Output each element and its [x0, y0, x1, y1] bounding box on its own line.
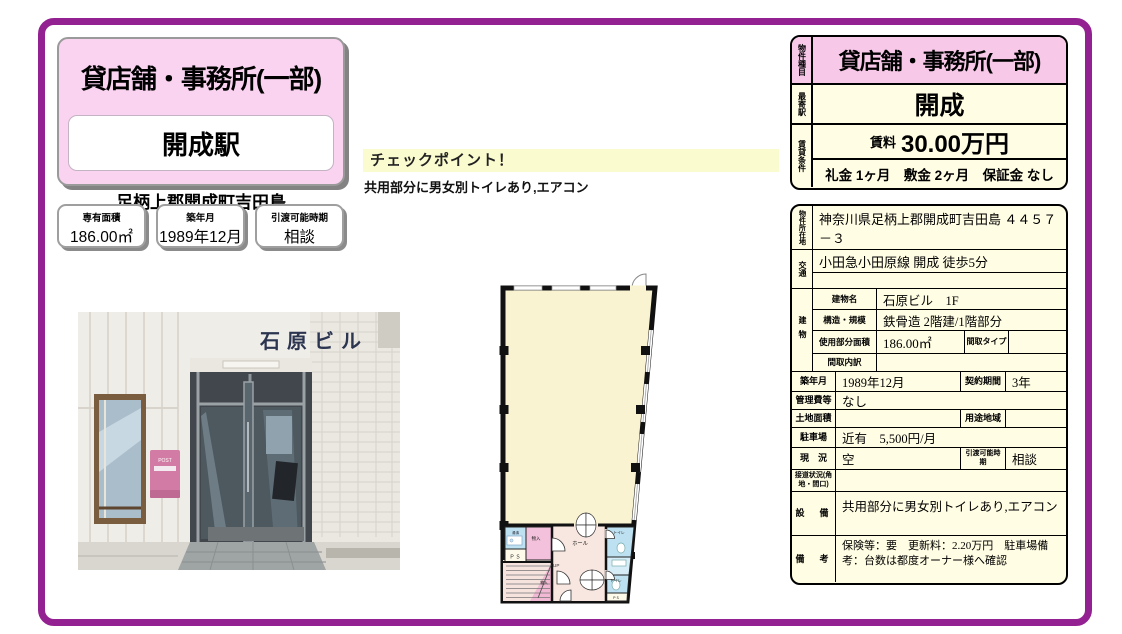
traffic-value-2: [813, 273, 1066, 288]
built-value: 1989年12月: [836, 372, 960, 391]
label-up: UP: [553, 563, 559, 568]
room-label-toilet-lower: トイレ: [610, 578, 622, 583]
structure-value: 鉄骨造 2階建/1階部分: [877, 310, 1066, 330]
room-label-storage-upper: 物入: [532, 535, 541, 542]
summary-type-label: 物件種目: [798, 44, 806, 76]
double-door: [576, 513, 596, 537]
stat-box-handover: 引渡可能時期 相談: [255, 204, 344, 248]
stat-value: 186.00㎡: [59, 225, 144, 247]
rent-value: 30.00万円: [901, 124, 1009, 159]
parking-value: 近有 5,500円/月: [836, 428, 1066, 447]
stat-label: 築年月: [158, 210, 243, 224]
zoning-label: 用途地域: [960, 410, 1006, 427]
land-label: 土地面積: [792, 410, 836, 427]
room-label-ps-right: ＰＳ: [613, 596, 620, 600]
status-value: 空: [836, 448, 960, 469]
layout-type-value: [1009, 331, 1066, 353]
layout-detail-value: [877, 354, 1066, 371]
double-door: [580, 570, 604, 590]
stat-value: 1989年12月: [158, 225, 243, 247]
stat-value: 相談: [257, 225, 342, 247]
station-box: 開成駅: [68, 115, 334, 171]
terms-value: 礼金 1ヶ月 敷金 2ヶ月 保証金 なし: [813, 160, 1066, 187]
road-label: 接道状況(角地・間口): [792, 470, 836, 491]
room-label-kitchenette: 湯沸: [512, 530, 520, 535]
traffic-label: 交通: [798, 261, 806, 277]
handover-label: 引渡可能時期: [960, 448, 1006, 469]
property-type-title: 貸店舗・事務所(一部): [59, 39, 343, 115]
room-label-toilet-upper: トイレ: [613, 530, 625, 535]
contract-label: 契約期間: [960, 372, 1006, 391]
summary-table: 物件種目 貸店舗・事務所(一部) 最寄駅 開成 賃貸条件 賃料 30.00万円 …: [790, 35, 1068, 190]
stat-label: 引渡可能時期: [257, 210, 342, 224]
notes-label: 備 考: [792, 536, 836, 582]
room-label-hall: ホール: [572, 540, 588, 547]
land-value: [836, 410, 960, 427]
building-name-value: 石原ビル 1F: [877, 289, 1066, 309]
headline-box: 貸店舗・事務所(一部) 開成駅: [57, 37, 345, 186]
mailbox: POST: [150, 450, 180, 498]
summary-station-label: 最寄駅: [798, 92, 806, 116]
contract-value: 3年: [1006, 372, 1066, 391]
stat-box-area: 専有面積 186.00㎡: [57, 204, 146, 248]
building-label-cell: 建物: [792, 289, 813, 371]
summary-terms-label: 賃貸条件: [798, 140, 806, 172]
use-area-value: 186.00㎡: [877, 331, 965, 353]
rent-label: 賃料: [870, 132, 896, 151]
checkpoint-body: 共用部分に男女別トイレあり,エアコン: [364, 177, 780, 196]
location-label: 物件所在地: [799, 210, 806, 245]
parking-label: 駐車場: [792, 428, 836, 447]
window: [94, 394, 146, 524]
summary-type-label-cell: 物件種目: [792, 37, 813, 83]
room-label-storage-stairs: 物入: [540, 580, 548, 585]
handover-value: 相談: [1006, 448, 1066, 469]
summary-station-label-cell: 最寄駅: [792, 85, 813, 123]
stat-boxes: 専有面積 186.00㎡ 築年月 1989年12月 引渡可能時期 相談: [57, 204, 344, 248]
layout-detail-label: 間取内訳: [813, 354, 877, 371]
flyer-page: 貸店舗・事務所(一部) 開成駅 足柄上郡開成町吉田島 専有面積 186.00㎡ …: [0, 0, 1122, 634]
building-sign: 石原ビル: [259, 330, 368, 353]
traffic-label-cell: 交通: [792, 250, 813, 288]
road-value: [836, 470, 1066, 491]
layout-type-label: 間取タイプ: [965, 331, 1009, 353]
summary-type-value: 貸店舗・事務所(一部): [813, 37, 1066, 83]
stat-box-built: 築年月 1989年12月: [156, 204, 245, 248]
summary-station-value: 開成: [813, 85, 1066, 123]
location-value: 神奈川県足柄上郡開成町吉田島 ４４５７－３: [813, 206, 1066, 249]
location-label-cell: 物件所在地: [792, 206, 813, 249]
status-label: 現 況: [792, 448, 836, 469]
summary-terms-label-cell: 賃貸条件: [792, 125, 813, 187]
traffic-value: 小田急小田原線 開成 徒歩5分: [813, 250, 1066, 273]
stat-label: 専有面積: [59, 210, 144, 224]
building-name-label: 建物名: [813, 289, 877, 309]
ground: [78, 542, 400, 570]
equipment-label: 設 備: [792, 492, 836, 535]
floor-plan: 湯沸 ＰＳ 物入 ホール トイレ トイレ ＰＳ UP 物入: [494, 272, 666, 614]
building-label: 建物: [798, 316, 806, 344]
checkpoint-title: チェックポイント！: [363, 149, 779, 172]
management-label: 管理費等: [792, 392, 836, 409]
built-label: 築年月: [792, 372, 836, 391]
entrance: [190, 358, 312, 544]
zoning-value: [1006, 410, 1066, 427]
adjacent-building: [378, 312, 400, 348]
detail-table: 物件所在地 神奈川県足柄上郡開成町吉田島 ４４５７－３ 交通 小田急小田原線 開…: [790, 204, 1068, 585]
mailbox-post-label: POST: [158, 458, 172, 464]
notes-value: 保険等：要 更新料：2.20万円 駐車場備考：台数は都度オーナー様へ確認: [836, 536, 1066, 582]
room-label-ps-left: ＰＳ: [509, 555, 521, 561]
structure-label: 構造・規模: [813, 310, 877, 330]
equipment-value: 共用部分に男女別トイレあり,エアコン: [836, 492, 1066, 535]
building-photo: 石原ビル POST: [78, 312, 400, 570]
use-area-label: 使用部分面積: [813, 331, 877, 353]
management-value: なし: [836, 392, 1066, 409]
